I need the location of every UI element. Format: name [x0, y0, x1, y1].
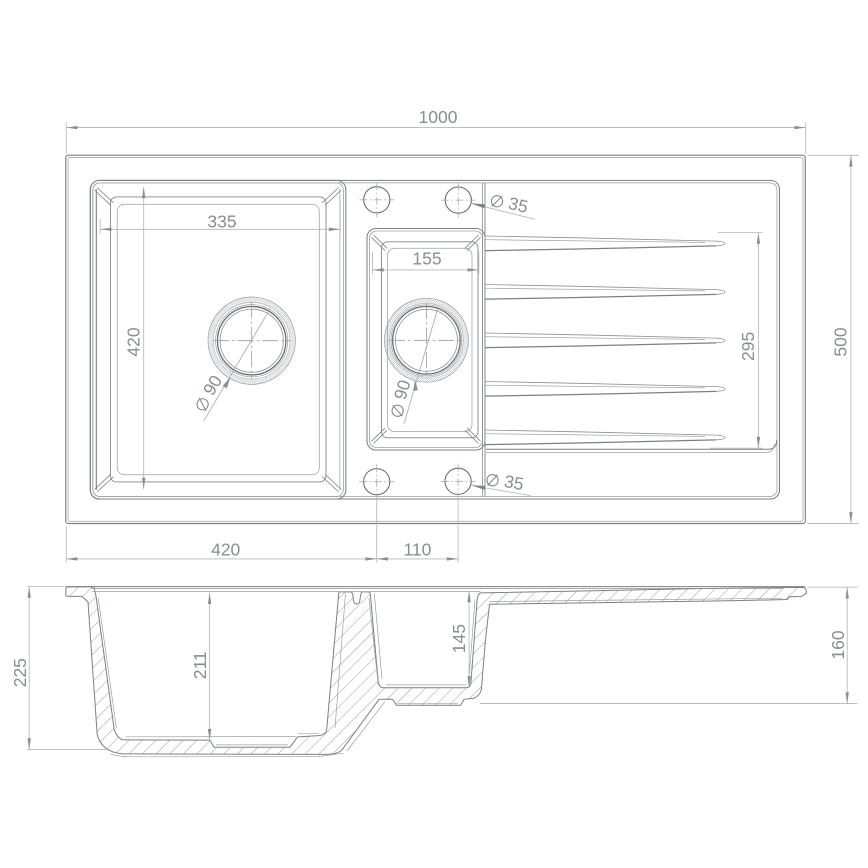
svg-text:225: 225 [10, 658, 30, 687]
svg-text:155: 155 [412, 248, 441, 268]
svg-text:145: 145 [449, 624, 469, 653]
svg-text:160: 160 [828, 630, 848, 659]
svg-text:420: 420 [211, 539, 240, 559]
svg-text:295: 295 [738, 332, 758, 361]
svg-text:1000: 1000 [419, 107, 458, 127]
svg-text:35: 35 [503, 471, 526, 494]
svg-text:211: 211 [190, 651, 210, 679]
svg-text:110: 110 [403, 539, 431, 559]
svg-text:500: 500 [831, 327, 851, 356]
svg-text:335: 335 [207, 212, 236, 232]
svg-text:420: 420 [123, 327, 143, 356]
